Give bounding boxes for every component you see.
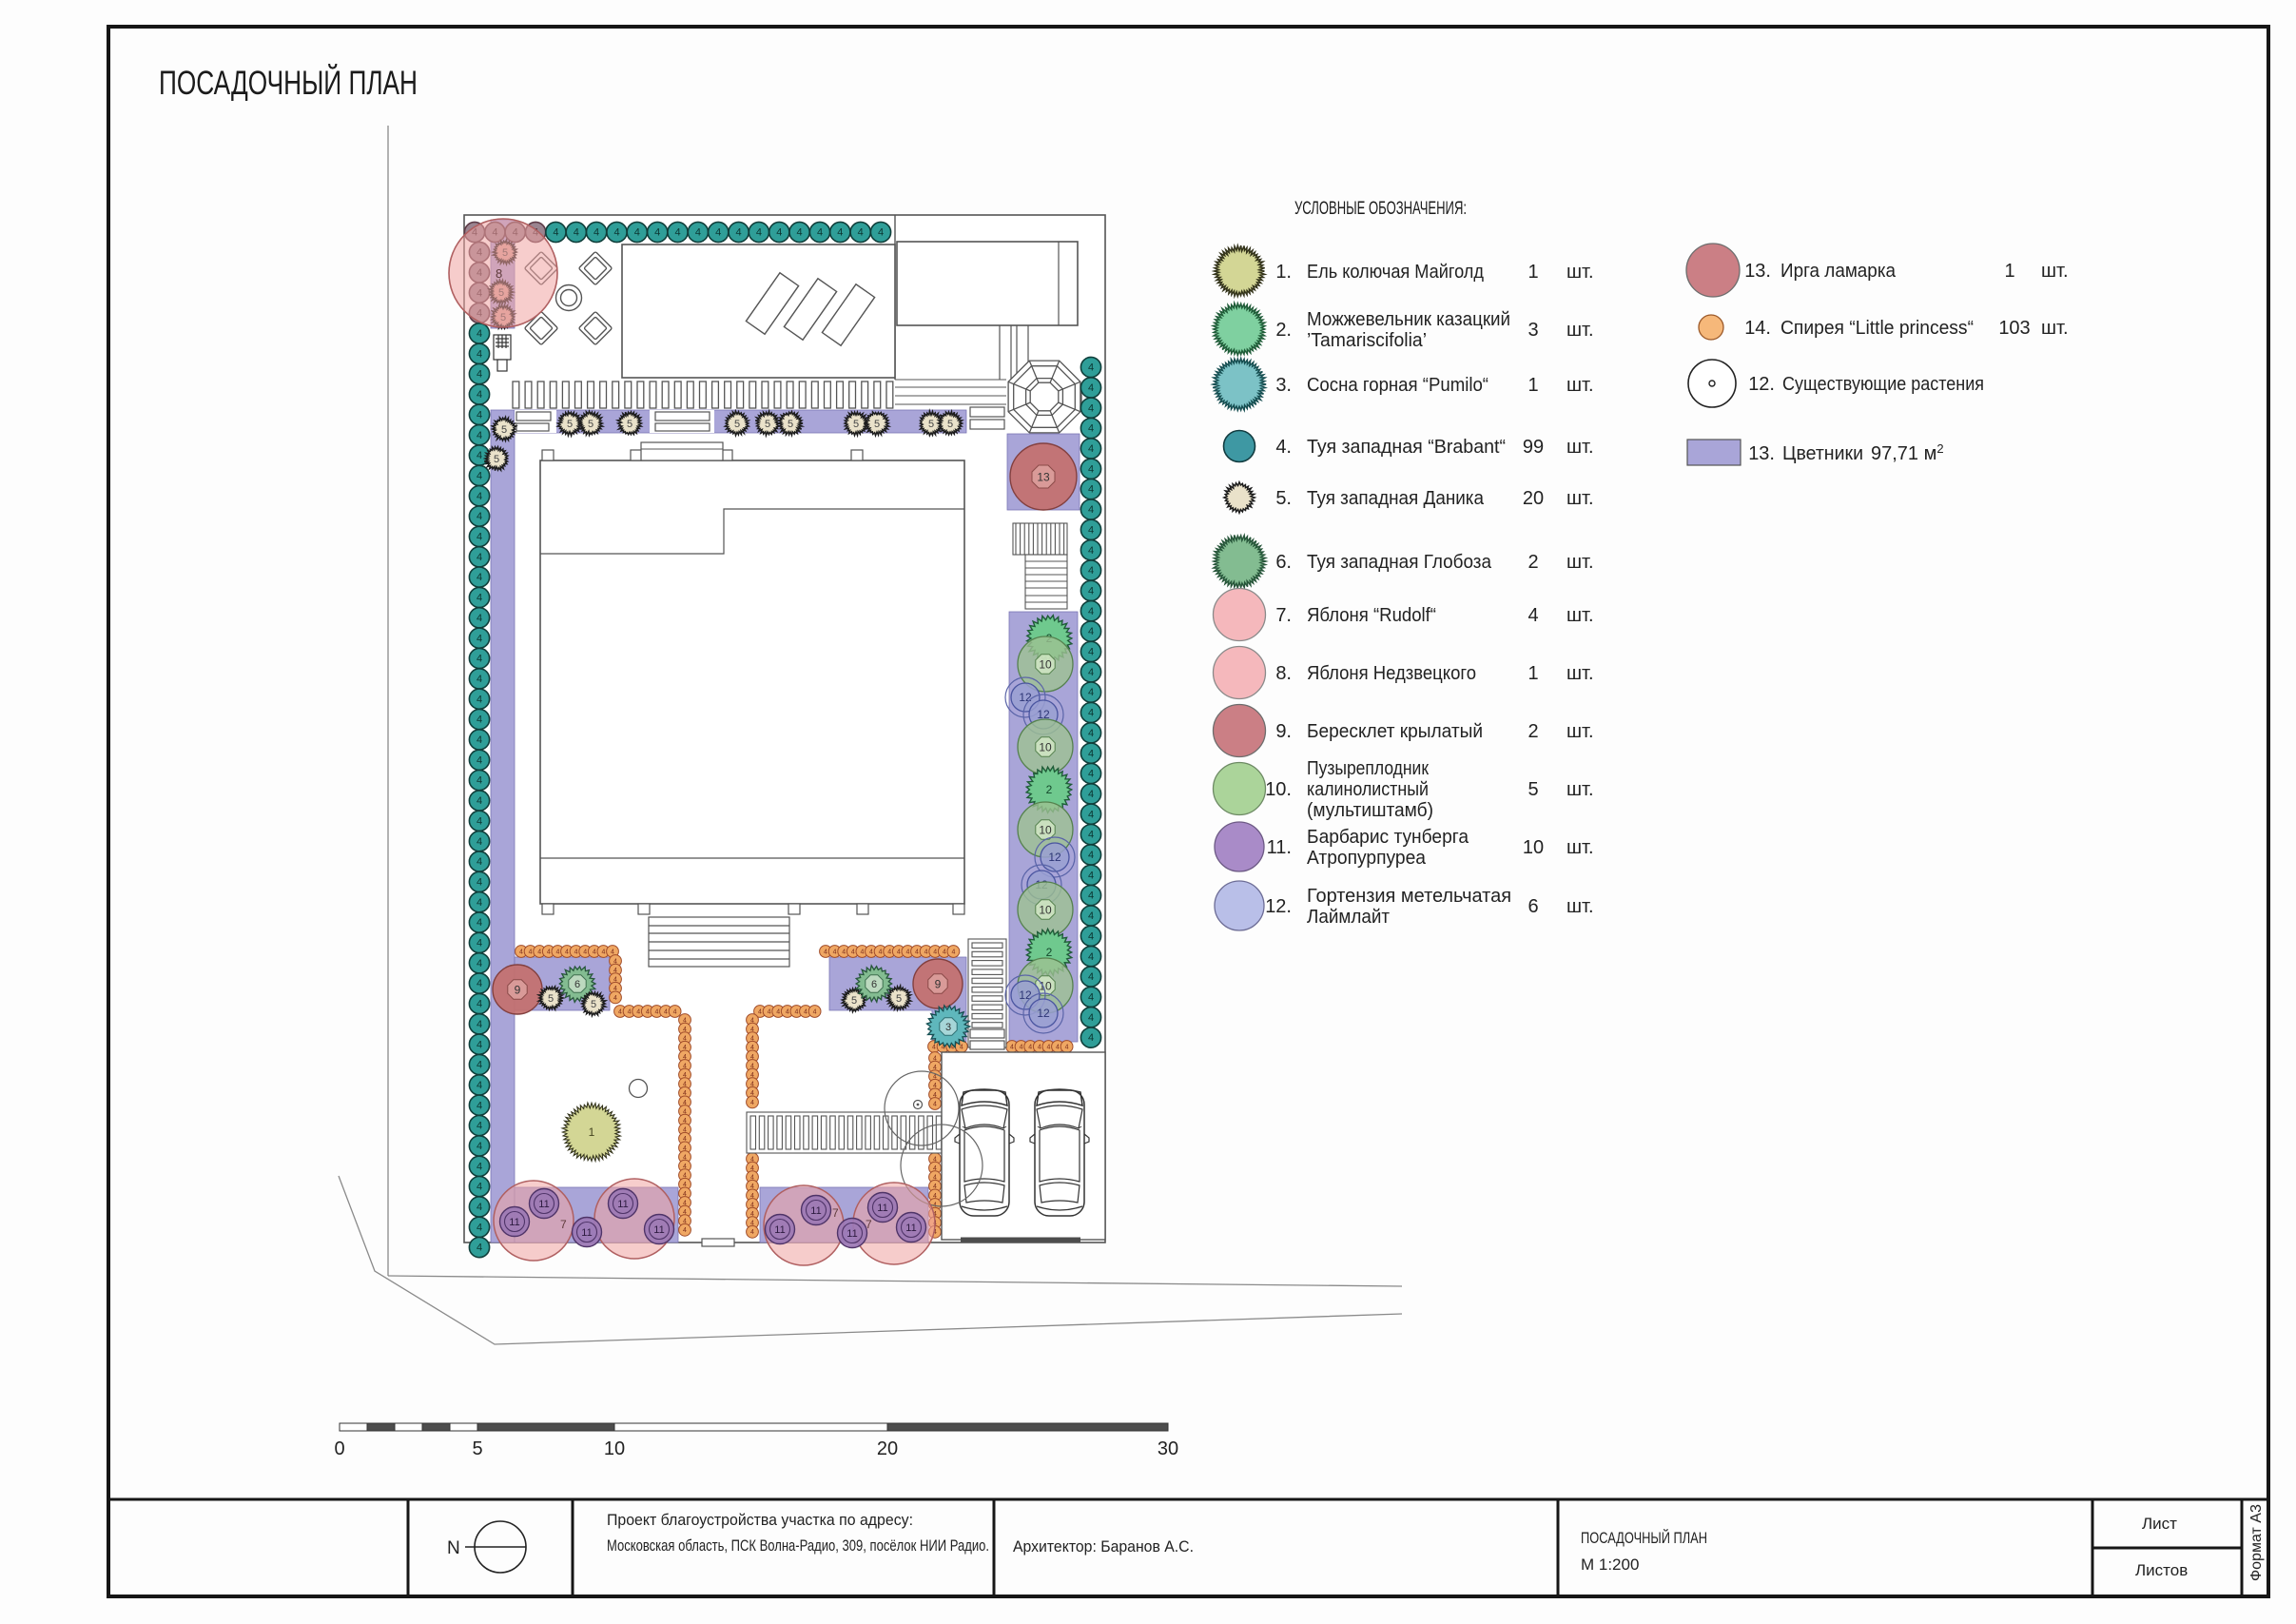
svg-text:4: 4 [878,227,884,239]
svg-text:4: 4 [924,949,928,955]
svg-text:Барбарис тунберга: Барбарис тунберга [1307,827,1469,848]
svg-text:6: 6 [1527,896,1538,917]
svg-text:Атропурпуреа: Атропурпуреа [1307,848,1427,869]
svg-text:шт.: шт. [2041,318,2069,339]
svg-text:4: 4 [1088,443,1094,455]
svg-text:6.: 6. [1275,552,1292,573]
svg-text:шт.: шт. [1566,605,1594,626]
svg-text:4: 4 [477,532,482,543]
svg-text:4: 4 [1020,1044,1023,1050]
svg-text:4: 4 [477,348,482,360]
svg-text:10: 10 [1039,823,1052,836]
svg-text:5: 5 [501,424,507,436]
svg-text:4: 4 [613,227,619,239]
svg-text:4: 4 [1038,1044,1041,1050]
svg-text:4: 4 [1088,504,1094,516]
svg-text:4: 4 [634,227,640,239]
svg-text:4: 4 [519,949,523,955]
svg-text:4: 4 [477,999,482,1010]
svg-text:11: 11 [538,1199,549,1210]
svg-text:Гортензия метельчатая: Гортензия метельчатая [1307,886,1511,907]
svg-text:4: 4 [654,227,660,239]
svg-text:14.: 14. [1744,318,1771,339]
svg-text:4: 4 [529,949,533,955]
svg-text:шт.: шт. [2041,261,2069,282]
svg-text:4: 4 [833,949,837,955]
svg-text:7: 7 [866,1218,872,1231]
svg-text:4: 4 [797,227,803,239]
svg-text:4: 4 [654,1008,658,1015]
svg-text:7: 7 [560,1218,567,1231]
svg-text:4: 4 [477,471,482,482]
svg-text:ПОСАДОЧНЫЙ ПЛАН: ПОСАДОЧНЫЙ ПЛАН [1581,1529,1707,1547]
svg-text:шт.: шт. [1566,375,1594,396]
svg-text:4: 4 [1088,890,1094,902]
svg-text:Формат А3: Формат А3 [2248,1504,2265,1581]
svg-text:4: 4 [851,949,855,955]
svg-text:4: 4 [673,1008,677,1015]
svg-text:4: 4 [628,1008,632,1015]
svg-text:4: 4 [1088,830,1094,841]
svg-text:5: 5 [896,993,902,1005]
svg-text:5: 5 [788,419,793,430]
svg-text:4: 4 [1088,1032,1094,1044]
svg-text:4: 4 [477,572,482,583]
svg-text:8: 8 [496,266,502,281]
svg-text:УСЛОВНЫЕ ОБОЗНАЧЕНИЯ:: УСЛОВНЫЕ ОБОЗНАЧЕНИЯ: [1294,199,1467,219]
svg-text:Ирга ламарка: Ирга ламарка [1780,261,1897,282]
svg-text:4: 4 [817,227,823,239]
svg-text:4: 4 [1088,951,1094,963]
svg-text:4: 4 [1088,586,1094,597]
svg-text:4: 4 [477,450,482,461]
svg-text:Листов: Листов [2135,1561,2188,1579]
svg-text:4: 4 [736,227,742,239]
svg-text:5: 5 [567,419,573,430]
svg-text:Московская область, ПСК Волна-: Московская область, ПСК Волна-Радио, 309… [607,1536,989,1555]
svg-text:4: 4 [583,949,587,955]
svg-text:4: 4 [477,917,482,929]
svg-text:1: 1 [1527,663,1538,684]
svg-text:0: 0 [334,1438,344,1459]
svg-text:4: 4 [574,949,578,955]
svg-text:4: 4 [1088,809,1094,820]
svg-text:11.: 11. [1267,837,1292,858]
svg-text:13: 13 [1037,470,1050,483]
svg-text:30: 30 [1158,1438,1178,1459]
svg-text:4: 4 [1088,789,1094,800]
svg-text:4: 4 [1046,1044,1050,1050]
svg-text:4: 4 [842,949,846,955]
svg-text:4: 4 [477,1080,482,1091]
svg-text:5: 5 [591,999,596,1010]
svg-text:5: 5 [494,454,499,465]
svg-text:4: 4 [477,430,482,441]
svg-text:4: 4 [477,674,482,685]
svg-text:4: 4 [477,409,482,421]
svg-text:4: 4 [933,1101,937,1107]
svg-text:9: 9 [515,983,521,996]
svg-text:4: 4 [1088,524,1094,536]
svg-text:12: 12 [1019,691,1032,704]
svg-text:4: 4 [1010,1044,1014,1050]
svg-text:11: 11 [846,1228,857,1240]
svg-text:4: 4 [553,227,558,239]
svg-text:4: 4 [715,227,721,239]
svg-text:2: 2 [1046,783,1053,796]
svg-text:1: 1 [1527,262,1538,283]
svg-text:4: 4 [477,815,482,827]
svg-text:4: 4 [618,1008,622,1015]
svg-text:Лист: Лист [2142,1515,2177,1533]
svg-text:шт.: шт. [1566,262,1594,283]
svg-text:9: 9 [935,977,942,990]
svg-text:Можжевельник казацкий: Можжевельник казацкий [1307,309,1510,330]
svg-text:4: 4 [804,1008,807,1015]
svg-text:4: 4 [477,1060,482,1071]
svg-text:2.: 2. [1275,320,1292,341]
svg-text:4: 4 [1088,402,1094,414]
svg-text:5.: 5. [1275,488,1292,509]
svg-text:Яблоня “Rudolf“: Яблоня “Rudolf“ [1307,605,1436,626]
svg-text:4: 4 [574,227,579,239]
svg-text:11: 11 [774,1224,785,1236]
svg-text:11: 11 [810,1205,821,1217]
svg-text:шт.: шт. [1566,488,1594,509]
svg-text:3.: 3. [1275,375,1292,396]
svg-text:Пузыреплодник: Пузыреплодник [1307,758,1429,779]
svg-text:Туя западная Глобоза: Туя западная Глобоза [1307,552,1492,573]
svg-text:шт.: шт. [1566,320,1594,341]
svg-text:1: 1 [1527,375,1538,396]
svg-text:7.: 7. [1275,605,1292,626]
svg-text:4: 4 [477,613,482,624]
svg-text:4: 4 [1088,606,1094,617]
svg-text:13.: 13. [1748,443,1775,464]
svg-text:4: 4 [869,949,873,955]
svg-text:10: 10 [604,1438,625,1459]
svg-text:4: 4 [477,328,482,340]
svg-text:4: 4 [636,1008,640,1015]
svg-text:4: 4 [547,949,551,955]
svg-text:20: 20 [1523,488,1544,509]
svg-text:4: 4 [1088,484,1094,496]
svg-text:4: 4 [1088,626,1094,637]
svg-text:4: 4 [477,978,482,989]
svg-text:10: 10 [1039,740,1052,753]
svg-text:10: 10 [1523,837,1544,858]
svg-text:4: 4 [477,856,482,868]
svg-text:4: 4 [1088,910,1094,922]
svg-text:4: 4 [1065,1044,1069,1050]
svg-text:4: 4 [477,491,482,502]
svg-text:4: 4 [887,949,891,955]
svg-text:4: 4 [601,949,605,955]
svg-text:4: 4 [613,995,617,1002]
svg-text:1: 1 [2004,261,2014,282]
svg-text:97,71 м2: 97,71 м2 [1871,441,1944,464]
svg-text:4: 4 [477,593,482,604]
svg-text:8.: 8. [1275,663,1292,684]
svg-text:99: 99 [1523,437,1544,458]
svg-text:4: 4 [1088,1012,1094,1024]
svg-text:4: 4 [537,949,541,955]
svg-text:4: 4 [695,227,701,239]
svg-text:4: 4 [756,227,762,239]
svg-text:5: 5 [851,995,857,1007]
svg-text:Проект благоустройства участка: Проект благоустройства участка по адресу… [607,1511,913,1529]
svg-text:4: 4 [1088,850,1094,861]
svg-text:5: 5 [947,419,953,430]
svg-text:4: 4 [477,1019,482,1030]
svg-text:4: 4 [477,1242,482,1254]
svg-text:Яблоня Недзвецкого: Яблоня Недзвецкого [1307,663,1476,684]
svg-text:12.: 12. [1265,896,1292,917]
svg-text:4: 4 [477,714,482,726]
svg-text:4: 4 [683,1227,687,1234]
svg-text:’Tamariscifolia’: ’Tamariscifolia’ [1307,330,1427,351]
svg-text:4: 4 [905,949,909,955]
svg-text:4: 4 [1088,362,1094,374]
svg-text:4: 4 [786,1008,789,1015]
svg-text:1: 1 [589,1125,595,1139]
svg-text:4: 4 [1088,423,1094,435]
svg-text:4: 4 [824,949,827,955]
svg-text:4: 4 [1088,930,1094,942]
svg-text:калинолистный: калинолистный [1307,779,1429,800]
svg-text:5: 5 [588,419,593,430]
svg-text:N: N [447,1538,460,1558]
svg-text:12.: 12. [1748,374,1775,395]
svg-text:Архитектор: Баранов А.С.: Архитектор: Баранов А.С. [1013,1537,1194,1556]
svg-text:4: 4 [477,795,482,807]
svg-text:4: 4 [1088,728,1094,739]
svg-text:4: 4 [943,949,946,955]
svg-text:шт.: шт. [1566,552,1594,573]
svg-text:4: 4 [646,1008,650,1015]
svg-text:4: 4 [477,1121,482,1132]
svg-text:4: 4 [477,389,482,401]
svg-text:Цветники: Цветники [1782,443,1863,464]
svg-text:шт.: шт. [1566,663,1594,684]
svg-text:4.: 4. [1275,437,1292,458]
svg-text:12: 12 [1019,988,1032,1002]
svg-text:11: 11 [877,1203,887,1214]
svg-text:4: 4 [1088,647,1094,658]
svg-text:4: 4 [477,552,482,563]
svg-text:Сосна горная “Pumilo“: Сосна горная “Pumilo“ [1307,375,1489,396]
svg-text:11: 11 [653,1224,664,1236]
svg-text:11: 11 [617,1199,628,1210]
svg-text:4: 4 [1088,463,1094,475]
svg-text:4: 4 [664,1008,668,1015]
svg-text:13.: 13. [1744,261,1771,282]
svg-text:3: 3 [1527,320,1538,341]
svg-text:4: 4 [477,1161,482,1172]
svg-text:4: 4 [477,1182,482,1193]
svg-text:4: 4 [1088,971,1094,983]
svg-text:4: 4 [1088,565,1094,577]
svg-text:9.: 9. [1275,721,1292,742]
svg-text:4: 4 [477,775,482,787]
svg-text:Туя западная Даника: Туя западная Даника [1307,488,1485,509]
svg-text:4: 4 [837,227,843,239]
svg-text:3: 3 [945,1022,951,1033]
svg-text:4: 4 [858,227,864,239]
svg-text:Лаймлайт: Лаймлайт [1307,907,1390,928]
svg-text:4: 4 [477,369,482,381]
svg-text:12: 12 [1048,851,1061,864]
svg-text:4: 4 [593,227,599,239]
svg-text:4: 4 [674,227,680,239]
svg-text:4: 4 [555,949,559,955]
svg-text:4: 4 [477,958,482,969]
svg-text:10: 10 [1039,903,1052,916]
svg-text:4: 4 [593,949,596,955]
svg-text:4: 4 [1088,667,1094,678]
svg-text:6: 6 [871,979,877,990]
svg-text:4: 4 [1088,748,1094,759]
svg-text:шт.: шт. [1566,437,1594,458]
svg-text:5: 5 [853,419,859,430]
svg-text:шт.: шт. [1566,837,1594,858]
svg-text:103: 103 [1998,318,2030,339]
svg-text:4: 4 [1527,605,1538,626]
svg-text:4: 4 [933,949,937,955]
svg-text:4: 4 [477,1100,482,1111]
svg-text:4: 4 [768,1008,771,1015]
svg-text:5: 5 [765,419,770,430]
svg-text:4: 4 [750,1100,754,1106]
svg-text:7: 7 [832,1206,839,1220]
svg-text:4: 4 [477,877,482,889]
svg-text:4: 4 [932,1044,936,1050]
svg-text:4: 4 [860,949,864,955]
svg-text:шт.: шт. [1566,779,1594,800]
svg-text:шт.: шт. [1566,896,1594,917]
svg-text:4: 4 [1088,382,1094,394]
svg-text:4: 4 [915,949,919,955]
svg-text:4: 4 [477,1222,482,1233]
svg-text:4: 4 [750,1229,754,1236]
svg-text:5: 5 [472,1438,482,1459]
svg-text:11: 11 [581,1227,592,1239]
svg-text:11: 11 [509,1217,519,1228]
svg-text:4: 4 [477,511,482,522]
svg-text:Существующие растения: Существующие растения [1782,374,1984,395]
svg-text:4: 4 [477,897,482,909]
svg-text:4: 4 [477,694,482,705]
svg-text:Ель колючая Майголд: Ель колючая Майголд [1307,262,1484,283]
svg-text:2: 2 [1527,721,1538,742]
svg-text:4: 4 [1088,870,1094,881]
svg-text:4: 4 [477,754,482,766]
svg-text:4: 4 [1088,769,1094,780]
svg-text:5: 5 [548,993,554,1005]
svg-text:4: 4 [776,227,782,239]
svg-text:4: 4 [477,1039,482,1050]
svg-text:20: 20 [877,1438,898,1459]
svg-text:5: 5 [874,419,880,430]
svg-text:4: 4 [1088,545,1094,557]
svg-text:ПОСАДОЧНЫЙ ПЛАН: ПОСАДОЧНЫЙ ПЛАН [159,64,418,102]
svg-text:Туя западная “Brabant“: Туя западная “Brabant“ [1307,437,1506,458]
svg-text:4: 4 [477,1141,482,1152]
svg-text:(мультиштамб): (мультиштамб) [1307,800,1433,821]
svg-text:2: 2 [1046,946,1053,959]
svg-text:4: 4 [477,1202,482,1213]
svg-text:4: 4 [1028,1044,1032,1050]
svg-text:Спирея “Little princess“: Спирея “Little princess“ [1780,318,1974,339]
svg-text:4: 4 [951,949,955,955]
svg-text:М 1:200: М 1:200 [1581,1556,1639,1574]
svg-text:4: 4 [477,734,482,746]
svg-text:4: 4 [477,836,482,848]
svg-text:4: 4 [1088,708,1094,719]
svg-text:4: 4 [897,949,901,955]
svg-text:5: 5 [734,419,740,430]
svg-text:4: 4 [1088,687,1094,698]
svg-text:4: 4 [477,654,482,665]
svg-text:4: 4 [794,1008,798,1015]
svg-text:4: 4 [1088,992,1094,1004]
svg-text:5: 5 [928,419,934,430]
svg-text:10: 10 [1039,657,1052,671]
svg-text:4: 4 [477,633,482,644]
svg-text:Бересклет крылатый: Бересклет крылатый [1307,721,1483,742]
svg-text:10: 10 [1039,979,1052,992]
svg-text:4: 4 [565,949,569,955]
svg-text:4: 4 [776,1008,780,1015]
svg-text:5: 5 [1527,779,1538,800]
svg-text:10.: 10. [1265,779,1292,800]
svg-text:5: 5 [627,419,632,430]
svg-text:шт.: шт. [1566,721,1594,742]
svg-text:4: 4 [813,1008,817,1015]
svg-text:4: 4 [1056,1044,1060,1050]
svg-text:1.: 1. [1275,262,1292,283]
svg-text:12: 12 [1037,1007,1050,1020]
svg-text:6: 6 [574,979,580,990]
svg-text:2: 2 [1527,552,1538,573]
svg-text:4: 4 [879,949,883,955]
svg-text:4: 4 [758,1008,762,1015]
svg-text:11: 11 [905,1223,916,1234]
svg-text:4: 4 [477,938,482,949]
